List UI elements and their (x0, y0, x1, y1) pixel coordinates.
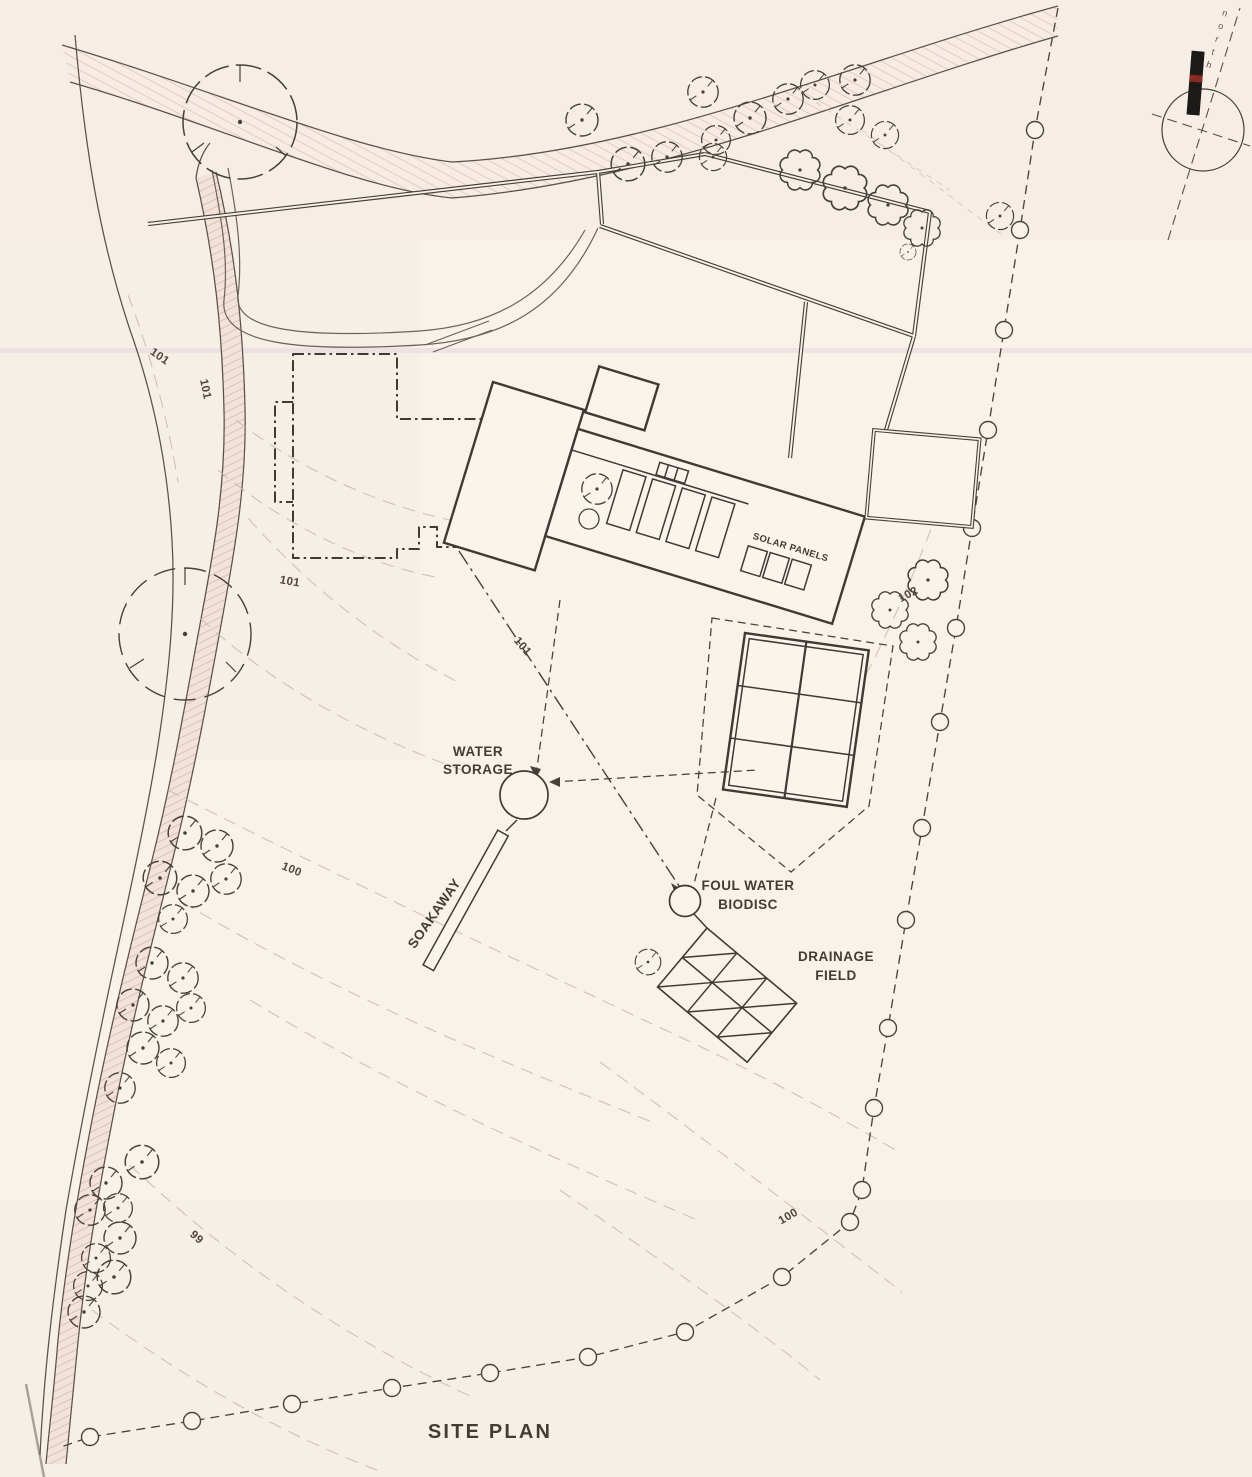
water-storage-tank (500, 771, 548, 819)
water-storage-label-line2: STORAGE (443, 762, 513, 777)
foul-water-label-line1: FOUL WATER (702, 878, 795, 893)
water-storage-label-line1: WATER (453, 744, 503, 759)
scan-wash-bottom (0, 1200, 1252, 1477)
scan-line (0, 348, 1252, 353)
drainage-field-label-line2: FIELD (815, 968, 857, 983)
drawing-title: SITE PLAN (428, 1421, 552, 1443)
garage-block (866, 430, 979, 527)
drainage-field-label-line1: DRAINAGE (798, 949, 874, 964)
site-plan-page: SOLAR PANELS (0, 0, 1252, 1477)
foul-water-biodisc-unit (670, 886, 701, 917)
foul-water-label-line2: BIODISC (718, 897, 778, 912)
terrace-grid (723, 633, 869, 807)
site-plan-drawing: SOLAR PANELS (0, 0, 1252, 1477)
